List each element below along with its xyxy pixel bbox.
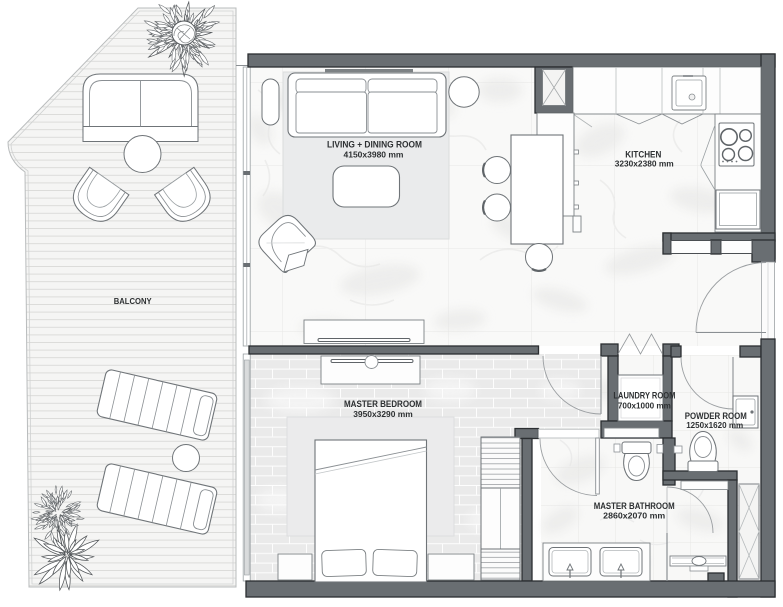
svg-text:LIVING + DINING ROOM: LIVING + DINING ROOM	[327, 140, 422, 150]
svg-text:700x1000 mm: 700x1000 mm	[618, 401, 671, 411]
svg-text:2860x2070 mm: 2860x2070 mm	[603, 511, 665, 521]
svg-text:MASTER BATHROOM: MASTER BATHROOM	[594, 501, 675, 511]
svg-text:3950x3290 mm: 3950x3290 mm	[353, 409, 413, 419]
svg-text:1250x1620 mm: 1250x1620 mm	[686, 420, 743, 430]
svg-text:BALCONY: BALCONY	[114, 296, 152, 306]
svg-text:4150x3980 mm: 4150x3980 mm	[344, 149, 404, 159]
svg-text:3230x2380 mm: 3230x2380 mm	[615, 159, 674, 169]
svg-text:LAUNDRY ROOM: LAUNDRY ROOM	[613, 390, 675, 400]
svg-text:MASTER BEDROOM: MASTER BEDROOM	[344, 399, 422, 409]
